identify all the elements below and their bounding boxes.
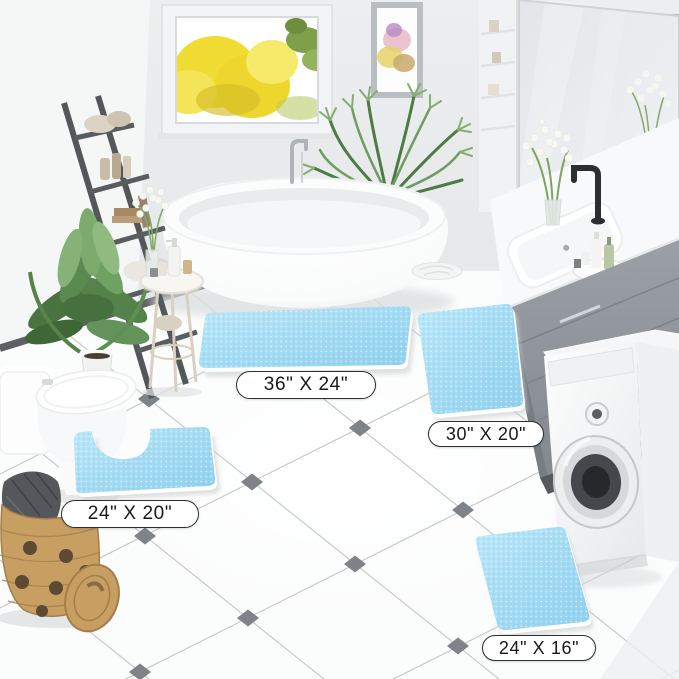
bathroom-product-photo: 36" X 24" 30" X 20" 24" X 20" 24" X 16" (0, 0, 679, 679)
size-label-24x16: 24" X 16" (482, 635, 596, 661)
size-label-text: 24" X 16" (499, 638, 579, 658)
window (158, 5, 336, 139)
runner-mat (418, 304, 527, 422)
floor-towel (412, 263, 462, 280)
bathtub (150, 178, 454, 320)
wall-art-frame (371, 2, 423, 98)
size-label-text: 30" X 20" (446, 424, 526, 444)
size-label-30x20: 30" X 20" (428, 421, 544, 447)
large-rectangular-mat (199, 306, 416, 377)
size-label-24x20: 24" X 20" (61, 500, 199, 528)
size-label-text: 24" X 20" (88, 503, 172, 524)
shelf-column (479, 0, 517, 212)
bathroom-scene (0, 0, 679, 679)
size-label-36x24: 36" X 24" (236, 371, 376, 399)
size-label-text: 36" X 24" (264, 374, 348, 395)
